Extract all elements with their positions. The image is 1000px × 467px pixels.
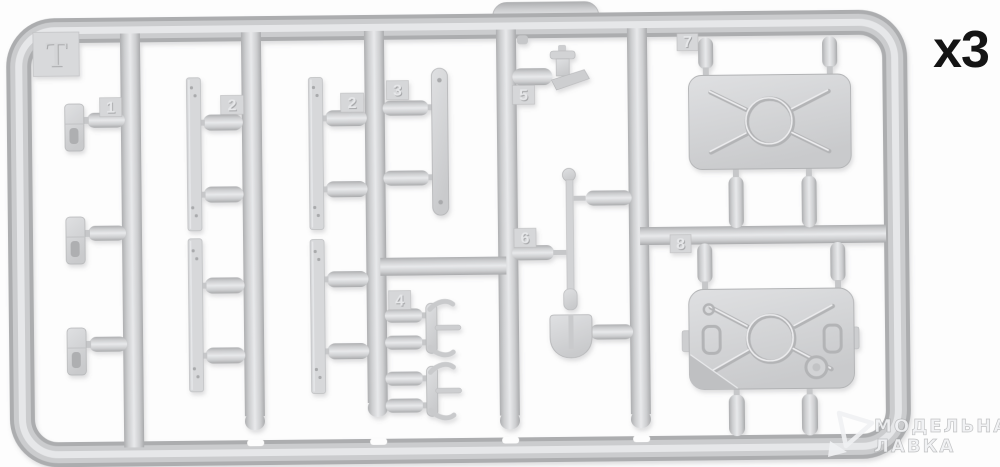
part-number-tab-2b: 2 2: [341, 93, 364, 113]
svg-text:2: 2: [228, 97, 237, 114]
part-2-strip-left: [186, 77, 245, 392]
frame-letter: T: [45, 34, 67, 74]
svg-text:3: 3: [393, 83, 402, 100]
runner-c: [364, 31, 388, 417]
part-8-canister-panel: [681, 242, 860, 437]
watermark-line2: ЛАВКА: [874, 436, 955, 457]
sprue-canvas: T T 1 1 2 2 2 2 3 3: [0, 0, 1000, 467]
part-number-tab-6: 6 6: [514, 228, 536, 248]
watermark-line1: МОДЕЛЬНАЯ: [874, 416, 1000, 437]
part-number-tab-4: 4 4: [389, 291, 411, 311]
runner-b: [241, 32, 265, 430]
svg-text:1: 1: [106, 100, 115, 117]
part-number-tab-2a: 2 2: [221, 95, 244, 115]
part-number-tab-8: 8 8: [670, 235, 691, 255]
part-number-tab-7: 7 7: [677, 33, 698, 52]
svg-text:8: 8: [676, 236, 685, 253]
svg-text:2: 2: [348, 95, 357, 112]
sprue-photo: T T 1 1 2 2 2 2 3 3: [0, 0, 1000, 467]
runner-h1: [380, 257, 506, 276]
part-5-fitting: [512, 45, 589, 91]
part-7-canister-panel: [688, 36, 852, 229]
part-number-tab-1: 1 1: [100, 98, 122, 118]
svg-text:7: 7: [683, 34, 692, 51]
part-1-brackets: [65, 104, 128, 376]
part-number-tab-3: 3 3: [386, 81, 408, 101]
frame-letter-tab: T T: [33, 32, 79, 76]
runner-a: [120, 33, 144, 447]
sprue-assembly: T T 1 1 2 2 2 2 3 3: [18, 0, 899, 455]
quantity-label: x3: [933, 21, 989, 79]
sprue-gate-nub: [517, 35, 528, 44]
svg-text:4: 4: [395, 293, 404, 310]
part-4-clamps: [385, 301, 462, 418]
svg-text:5: 5: [519, 87, 528, 104]
part-2-strip-right: [308, 77, 369, 394]
svg-text:6: 6: [521, 230, 530, 247]
part-number-tab-5: 5 5: [512, 85, 534, 105]
part-6-shovel: [511, 168, 633, 359]
